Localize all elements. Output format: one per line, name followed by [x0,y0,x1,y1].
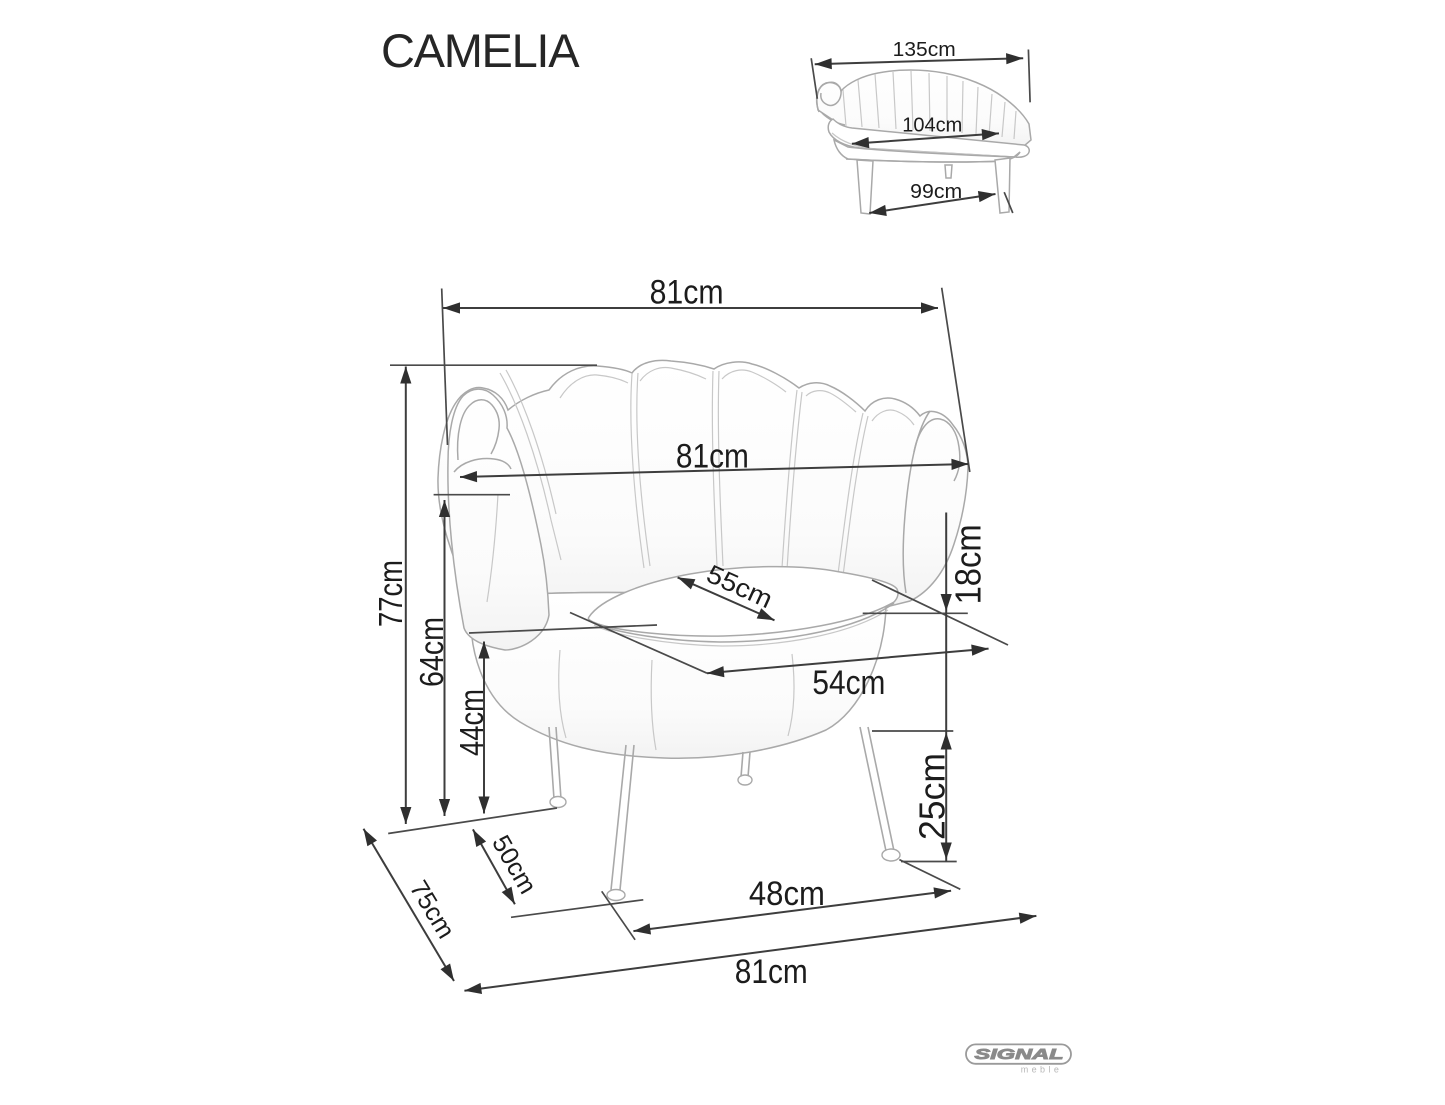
svg-text:64cm: 64cm [413,617,450,687]
svg-text:meble: meble [1021,1065,1063,1075]
svg-text:99cm: 99cm [910,181,962,203]
svg-text:44cm: 44cm [453,689,490,756]
svg-text:18cm: 18cm [948,524,989,604]
svg-text:54cm: 54cm [812,664,885,702]
svg-text:77cm: 77cm [372,560,409,627]
svg-text:48cm: 48cm [749,875,825,913]
svg-text:81cm: 81cm [676,437,749,475]
svg-text:104cm: 104cm [902,114,962,136]
svg-text:25cm: 25cm [912,753,953,840]
svg-text:CAMELIA: CAMELIA [381,24,580,77]
svg-text:81cm: 81cm [650,273,724,311]
svg-text:SIGNAL: SIGNAL [975,1046,1064,1063]
svg-text:135cm: 135cm [893,39,956,61]
svg-text:81cm: 81cm [735,953,808,991]
